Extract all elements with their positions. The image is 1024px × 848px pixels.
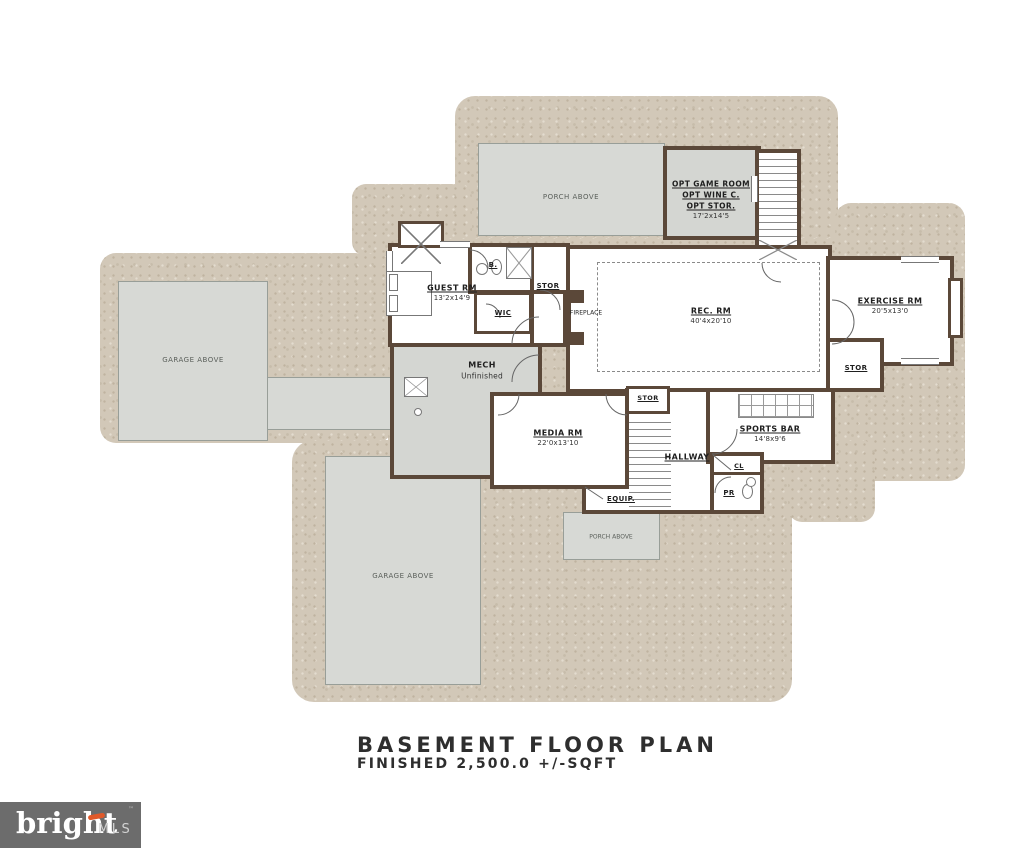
stairs-top-treads xyxy=(759,153,797,240)
wic-label: WIC xyxy=(495,309,512,317)
floor-plan-canvas: PORCH ABOVE GARAGE ABOVE GARAGE ABOVE PO… xyxy=(0,0,1024,848)
window-exercise-bottom xyxy=(901,358,939,365)
pr-label: PR xyxy=(723,489,734,497)
stor-guest-label: STOR xyxy=(537,282,560,290)
porch-above-top-area xyxy=(478,143,665,236)
garage-connector-area xyxy=(267,377,393,430)
garage-above-bottom-label: GARAGE ABOVE xyxy=(372,572,434,580)
pr-sink xyxy=(746,477,756,487)
cl-label: CL xyxy=(734,462,744,470)
mech-label: MECH xyxy=(468,361,496,370)
porch-above-top-label: PORCH ABOVE xyxy=(543,193,599,201)
rec-room-dims: 40'4x20'10 xyxy=(690,317,731,325)
guest-room-dims: 13'2x14'9 xyxy=(434,294,471,302)
media-room-dims: 22'0x13'10 xyxy=(537,439,578,447)
rec-room-label: REC. RM xyxy=(691,307,731,316)
mech-sub-label: Unfinished xyxy=(461,372,503,381)
fireplace-label: FIREPLACE xyxy=(570,310,602,317)
sports-bar-counter xyxy=(738,394,814,418)
exercise-bay xyxy=(948,278,963,338)
bath-shower xyxy=(506,247,532,279)
window-exercise-top xyxy=(901,256,939,263)
mls-logo-text: MLS xyxy=(98,822,132,837)
opt-game-label-1: OPT GAME ROOM xyxy=(672,180,750,189)
guest-bed-pillow-1 xyxy=(389,274,398,291)
cl-partition-h xyxy=(710,472,764,475)
window-stair-left xyxy=(751,176,758,202)
opt-game-label-3: OPT STOR. xyxy=(687,202,736,211)
garage-above-bottom-area xyxy=(325,456,481,685)
opt-game-dims: 17'2x14'5 xyxy=(693,212,730,220)
opt-game-label-2: OPT WINE C. xyxy=(682,191,739,200)
bath-sink xyxy=(476,263,488,275)
plan-subtitle: FINISHED 2,500.0 +/-SQFT xyxy=(357,756,617,772)
stor-exercise-label: STOR xyxy=(845,364,868,372)
bath-label: B. xyxy=(489,261,498,269)
hallway-label: HALLWAY xyxy=(665,453,710,462)
exercise-room-label: EXERCISE RM xyxy=(858,297,923,306)
sports-bar-dims: 14'8x9'6 xyxy=(754,435,786,443)
sports-bar-label: SPORTS BAR xyxy=(740,425,801,434)
x-mark xyxy=(401,224,441,264)
media-room-label: MEDIA RM xyxy=(533,429,582,438)
mech-drain xyxy=(414,408,422,416)
stor-hallway-label: STOR xyxy=(637,394,658,402)
window-guest-top xyxy=(440,241,470,248)
closet-top xbox xyxy=(398,221,444,248)
plan-title: BASEMENT FLOOR PLAN xyxy=(357,733,718,757)
guest-room-label: GUEST RM xyxy=(427,284,477,293)
equip-label: EQUIP. xyxy=(607,495,635,503)
fireplace-tab-top xyxy=(563,290,584,303)
bright-mls-watermark: bright ™ MLS xyxy=(0,802,141,848)
stairs-top-xmark xyxy=(759,240,797,260)
trademark-symbol: ™ xyxy=(128,806,134,813)
exercise-room-dims: 20'5x13'0 xyxy=(872,307,909,315)
guest-bed-pillow-2 xyxy=(389,295,398,312)
stairs-hallway-treads xyxy=(629,416,671,510)
porch-above-bottom-label: PORCH ABOVE xyxy=(589,534,632,541)
garage-above-left-label: GARAGE ABOVE xyxy=(162,356,224,364)
mech-sump xyxy=(404,377,428,397)
fireplace-tab-bottom xyxy=(563,332,584,345)
